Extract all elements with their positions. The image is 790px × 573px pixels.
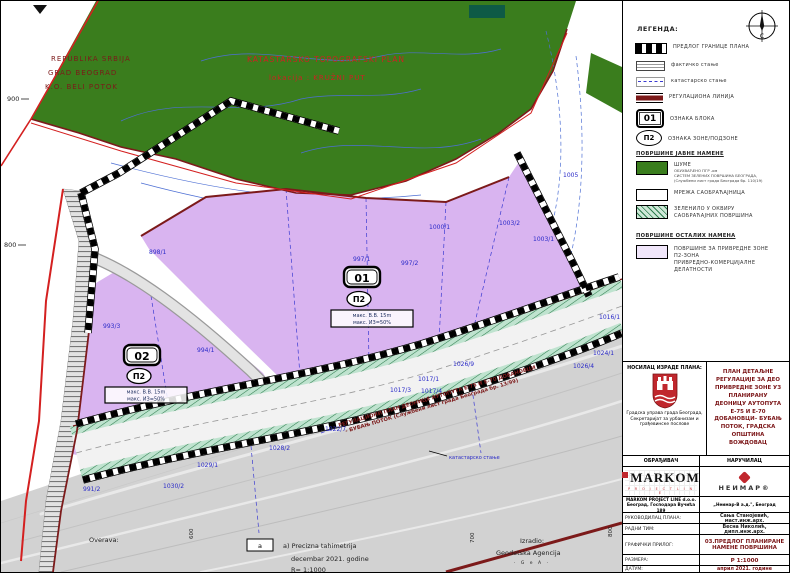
parcel-label: 993/3 — [103, 323, 120, 330]
legend-item-roads: МРЕЖА САОБРАЋАЈНИЦА — [636, 189, 745, 201]
block-param1: макс. В.В. 15m — [127, 390, 166, 396]
forest-label-patch — [469, 5, 505, 18]
tb-address-row: MARKOM PROJECT LINE d.o.o. Београд, Госп… — [623, 496, 789, 513]
legend-item-zone: П2 ОЗНАКА ЗОНЕ/ПОДЗОНЕ — [636, 130, 738, 146]
parcel-label: 1003/2 — [499, 220, 520, 227]
grid-label: 800 — [608, 526, 614, 537]
tb-row-graphic: ГРАФИЧКИ ПРИЛОГ: 03.ПРЕДЛОГ ПЛАНИРАНЕ НА… — [623, 534, 789, 555]
block-param2: макс. ИЗ=50% — [127, 397, 165, 403]
economic-swatch — [636, 245, 668, 259]
title-block: НОСИЛАЦ ИЗРАДЕ ПЛАНА: Градс — [623, 361, 789, 572]
legend-section-public: ПОВРШИНЕ ЈАВНЕ НАМЕНЕ — [636, 151, 724, 157]
map-drawing: REPUBLIKA SRBIJA GRAD BEOGRAD K.O. BELI … — [1, 1, 622, 572]
legend-item-greenery: ЗЕЛЕНИЛО У ОКВИРУ САОБРАЋАЈНИХ ПОВРШИНА — [636, 205, 753, 219]
regulation-swatch — [636, 93, 663, 103]
parcel-label: 991/2 — [83, 486, 100, 493]
neimar-logo: НЕИМАР® — [700, 467, 789, 497]
parcel-label: 1030/2 — [163, 483, 184, 490]
plan-title: ПЛАН ДЕТАЉНЕ РЕГУЛАЦИЈЕ ЗА ДЕО ПРИВРЕДНЕ… — [709, 365, 787, 451]
cadastral-note: катастарско стање — [449, 455, 500, 461]
compass-letter: С — [760, 33, 764, 40]
legend-item-regulation: РЕГУЛАЦИОНА ЛИНИЈА — [636, 93, 734, 103]
tb-header-section: НОСИЛАЦ ИЗРАДЕ ПЛАНА: Градс — [623, 362, 789, 455]
legend: С ЛЕГЕНДА: ПРЕДЛОГ ГРАНИЦЕ ПЛАНА фактичк… — [623, 1, 789, 361]
map-subtitle: lokacija : KRUŽNI PUT — [269, 73, 366, 82]
survey-box-letter: a — [258, 542, 262, 550]
side-panel: С ЛЕГЕНДА: ПРЕДЛОГ ГРАНИЦЕ ПЛАНА фактичк… — [622, 1, 789, 572]
zone-badge: П2 — [636, 130, 662, 146]
elevation-label: 900 — [7, 95, 19, 103]
neimar-address: „Неимар-В а.д.", Београд — [700, 497, 789, 513]
region-line3: K.O. BELI POTOK — [45, 83, 118, 91]
parcel-label: 1000/1 — [429, 224, 450, 231]
parcel-label: 1026/4 — [573, 363, 594, 370]
grid-label: 600 — [189, 528, 195, 539]
parcel-label: 1028/2 — [269, 445, 290, 452]
greenery-swatch — [636, 205, 668, 219]
plan-holder-cell: НОСИЛАЦ ИЗРАДЕ ПЛАНА: Градс — [623, 362, 707, 455]
roads-swatch — [636, 189, 668, 201]
forest-swatch — [636, 161, 668, 175]
elevation-label: 800 — [4, 241, 16, 249]
markom-square-icon — [622, 472, 628, 478]
boundary-swatch — [635, 43, 667, 54]
tb-logos-row: MARKOM P R O J E C T L I N E НЕИМАР® — [623, 466, 789, 497]
parcel-label: 997/1 — [353, 256, 370, 263]
belgrade-coat-of-arms — [650, 373, 680, 409]
zone-id: П2 — [353, 295, 365, 304]
legend-item-boundary: ПРЕДЛОГ ГРАНИЦЕ ПЛАНА — [635, 43, 749, 54]
holder-label: НОСИЛАЦ ИЗРАДЕ ПЛАНА: — [627, 366, 702, 371]
parcel-label: 1026/9 — [453, 361, 474, 368]
compass-needle — [760, 13, 764, 31]
legend-item-cadastral: катастарско стање — [636, 77, 727, 87]
parcel-label: 1016/1 — [599, 314, 620, 321]
plan-title-cell: ПЛАН ДЕТАЉНЕ РЕГУЛАЦИЈЕ ЗА ДЕО ПРИВРЕДНЕ… — [707, 362, 789, 455]
region-line1: REPUBLIKA SRBIJA — [51, 55, 131, 63]
survey-line2: decembar 2021. godine — [291, 555, 369, 563]
legend-item-economic: ПОВРШИНЕ ЗА ПРИВРЕДНЕ ЗОНЕ П2-ЗОНА ПРИВР… — [636, 245, 768, 273]
survey-line3: R= 1:1000 — [291, 566, 326, 572]
block-badge: 01 — [636, 109, 664, 128]
grid-label: 700 — [470, 532, 476, 543]
parcel-label: 1017/1 — [418, 376, 439, 383]
block-param2: макс. ИЗ=50% — [353, 320, 391, 326]
agency-sub: · G e A · — [514, 560, 550, 566]
holder-org: Градска управа града Београда, Секретари… — [626, 411, 702, 428]
parcel-label: 1024/1 — [593, 350, 614, 357]
parcel-label: 1017/3 — [390, 387, 411, 394]
legend-section-other: ПОВРШИНЕ ОСТАЛИХ НАМЕНА — [636, 233, 736, 239]
plan-sheet: REPUBLIKA SRBIJA GRAD BEOGRAD K.O. BELI … — [0, 0, 790, 573]
neimar-icon — [738, 471, 751, 484]
compass: С — [745, 9, 779, 47]
zone-id: П2 — [133, 372, 145, 381]
markom-address: MARKOM PROJECT LINE d.o.o. Београд, Госп… — [623, 497, 700, 513]
block-id: 01 — [354, 272, 369, 285]
markom-logo: MARKOM P R O J E C T L I N E — [623, 467, 700, 497]
map-area: REPUBLIKA SRBIJA GRAD BEOGRAD K.O. BELI … — [1, 1, 622, 572]
legend-item-forest: ШУМЕ ОБУХВАЋЕНО ПГР -ом СИСТЕМ ЗЕЛЕНИХ П… — [636, 161, 763, 183]
parcel-label: 997/2 — [401, 260, 418, 267]
legend-title: ЛЕГЕНДА: — [637, 25, 678, 33]
cadastral-swatch — [636, 77, 665, 87]
parcel-label: 994/1 — [197, 347, 214, 354]
parcel-label: 1005 — [563, 172, 578, 179]
parcel-label: 898/1 — [149, 249, 166, 256]
region-line2: GRAD BEOGRAD — [48, 69, 117, 77]
survey-line1: a) Precizna tahimetrija — [283, 542, 357, 550]
overava-label: Overava: — [89, 536, 119, 544]
parcel-label: 1003/1 — [533, 236, 554, 243]
block-param1: макс. В.В. 15m — [353, 313, 392, 319]
tb-row-date: ДАТУМ: април 2021. године — [623, 565, 789, 572]
izradio-label: Izradio: — [520, 537, 544, 545]
legend-item-block: 01 ОЗНАКА БЛОКА — [636, 109, 715, 128]
block-id: 02 — [134, 350, 149, 363]
parcel-label: 1029/1 — [197, 462, 218, 469]
legend-item-factual: фактичко стање — [636, 61, 719, 71]
map-title: KATASTARSKO TOPOGRAFSKI PLAN — [247, 55, 405, 64]
factual-swatch — [636, 61, 665, 71]
agency-label: Geodetska Agencija — [496, 549, 561, 557]
